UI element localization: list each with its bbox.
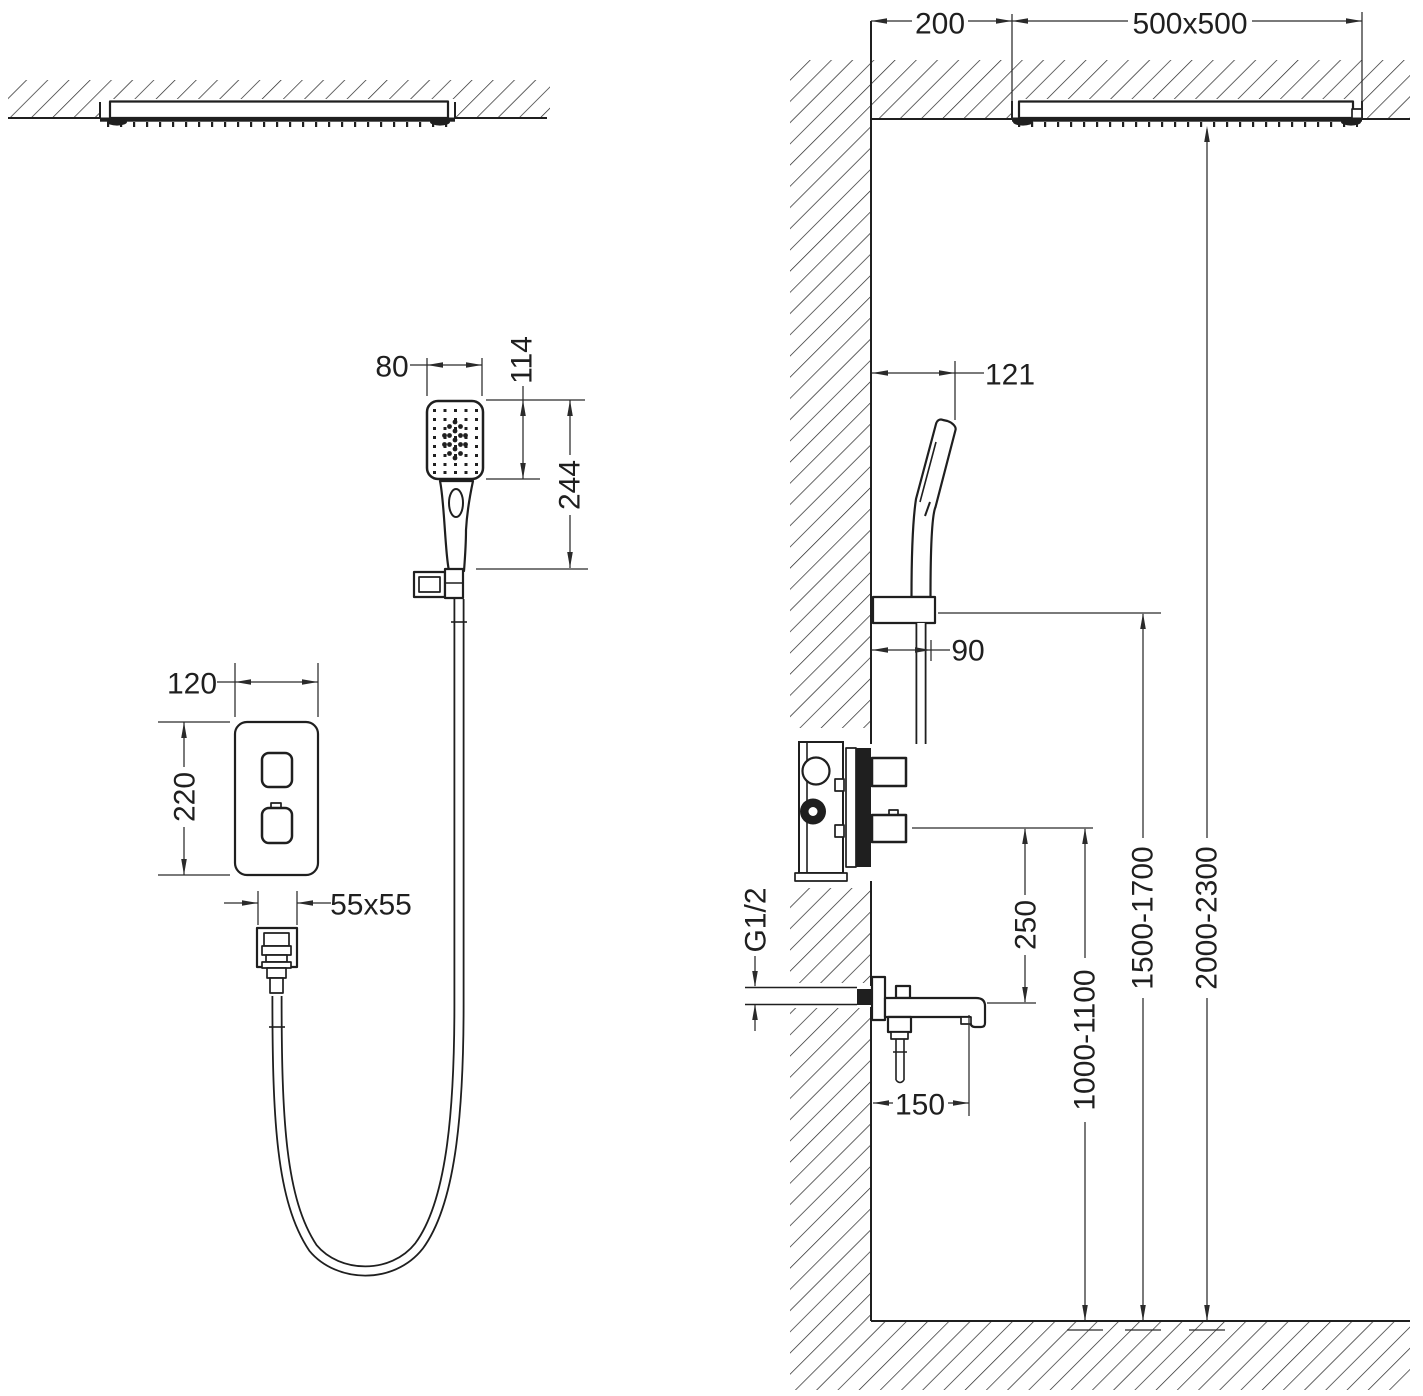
mixer-panel-front bbox=[235, 722, 318, 875]
dim-label-head-size: 500x500 bbox=[1132, 8, 1247, 41]
hand-shower-side bbox=[873, 419, 956, 744]
dim-label-head-mount-height: 2000-2300 bbox=[1191, 846, 1224, 989]
pipe-stub bbox=[857, 989, 872, 1005]
mixer-knob-bottom-side bbox=[872, 815, 906, 842]
floor-section bbox=[871, 1321, 1410, 1390]
shower-hose-front bbox=[269, 599, 467, 1271]
wall-section bbox=[790, 60, 871, 1390]
side-view: 200 500x500 121 90 G1/2 250 1000 bbox=[740, 8, 1411, 1391]
dim-label-spout-length: 150 bbox=[895, 1089, 945, 1122]
ceiling-shower-head-front bbox=[100, 102, 455, 126]
dim-label-hose-wall-offset: 90 bbox=[951, 635, 984, 668]
front-view: 80 114 244 120 220 55x55 bbox=[8, 80, 588, 1271]
dim-label-panel-height: 220 bbox=[169, 772, 202, 822]
mixer-face-plate bbox=[856, 748, 871, 867]
ceiling-shower-head-side bbox=[1012, 102, 1362, 126]
dim-label-pipe-thread: G1/2 bbox=[740, 887, 773, 952]
dim-label-knob-to-spout: 250 bbox=[1010, 900, 1043, 950]
wall-outlet-front bbox=[257, 928, 297, 993]
dimensions-front: 80 114 244 120 220 55x55 bbox=[158, 336, 588, 925]
mixer-knob-bottom bbox=[262, 808, 292, 843]
dim-label-panel-width: 120 bbox=[167, 668, 217, 701]
dim-label-hand-shower-head-height: 114 bbox=[506, 336, 539, 384]
dim-label-hand-shower-length: 244 bbox=[554, 460, 587, 510]
dim-label-holder-wall-offset: 121 bbox=[985, 359, 1035, 392]
dim-label-head-wall-offset: 200 bbox=[915, 8, 965, 41]
hand-shower-holder-front bbox=[414, 569, 463, 598]
hand-shower-front bbox=[414, 401, 483, 598]
hand-shower-holder-side bbox=[873, 597, 935, 623]
hand-shower-handle bbox=[440, 481, 473, 571]
dim-label-holder-mount-height: 1500-1700 bbox=[1127, 846, 1160, 989]
dim-label-spout-mount-height: 1000-1100 bbox=[1069, 969, 1102, 1110]
mixer-knob-top-side bbox=[872, 758, 906, 786]
mixer-knob-top bbox=[262, 753, 292, 787]
dim-label-hand-shower-width: 80 bbox=[375, 351, 408, 384]
pipe-connection-top bbox=[803, 758, 830, 785]
technical-drawing: 80 114 244 120 220 55x55 bbox=[0, 0, 1423, 1396]
installation-drawing-page: 80 114 244 120 220 55x55 bbox=[0, 0, 1423, 1396]
bath-spout-side bbox=[872, 977, 985, 1083]
mixer-panel-plate bbox=[235, 722, 318, 875]
spout-hose bbox=[893, 1039, 907, 1083]
dim-label-outlet-size: 55x55 bbox=[330, 889, 412, 922]
